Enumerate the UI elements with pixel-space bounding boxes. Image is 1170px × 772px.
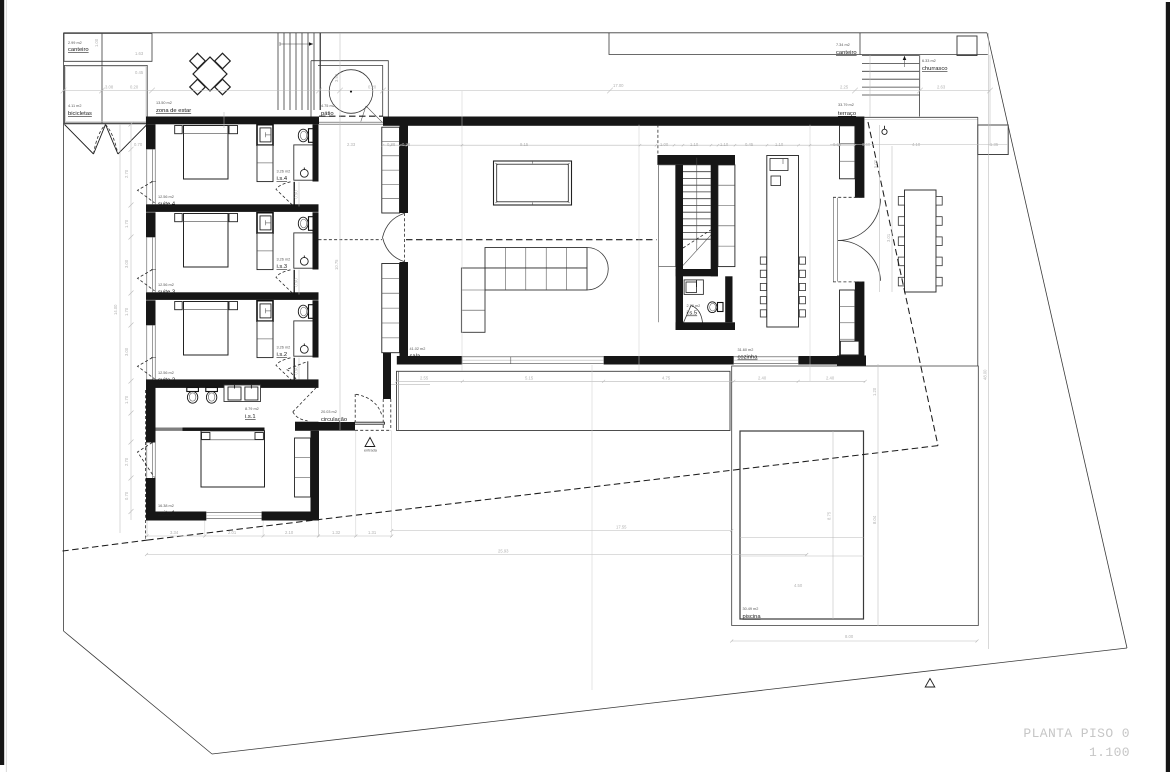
- svg-text:i.s.4: i.s.4: [277, 176, 288, 182]
- svg-text:0.45: 0.45: [135, 70, 144, 75]
- svg-text:17.00: 17.00: [613, 83, 624, 88]
- svg-text:2.01: 2.01: [228, 530, 237, 535]
- svg-text:9.15: 9.15: [520, 142, 529, 147]
- svg-text:2.40: 2.40: [758, 376, 767, 381]
- svg-text:3.00: 3.00: [124, 259, 129, 268]
- svg-text:12.56 m2: 12.56 m2: [158, 283, 174, 287]
- svg-text:0.70: 0.70: [124, 491, 129, 500]
- svg-text:3.00: 3.00: [124, 347, 129, 356]
- svg-text:14.00: 14.00: [113, 304, 118, 315]
- svg-text:3.26 m2: 3.26 m2: [277, 170, 291, 174]
- svg-text:12.56 m2: 12.56 m2: [158, 371, 174, 375]
- svg-text:1.31: 1.31: [368, 530, 377, 535]
- svg-text:4.75: 4.75: [662, 376, 671, 381]
- svg-text:0.45: 0.45: [745, 142, 754, 147]
- svg-text:4.75 m2: 4.75 m2: [321, 104, 335, 108]
- svg-text:entrada: entrada: [364, 449, 378, 453]
- svg-text:2.55: 2.55: [420, 376, 429, 381]
- svg-text:16.38 m2: 16.38 m2: [158, 504, 174, 508]
- svg-text:7.34 m2: 7.34 m2: [836, 43, 850, 47]
- svg-text:2.63: 2.63: [937, 85, 946, 90]
- svg-text:2.99 m2: 2.99 m2: [68, 41, 82, 45]
- svg-text:3.26 m2: 3.26 m2: [277, 258, 291, 262]
- svg-text:0.20: 0.20: [130, 85, 139, 90]
- svg-text:i.s.1: i.s.1: [245, 414, 256, 420]
- svg-text:33.79 m2: 33.79 m2: [838, 103, 854, 107]
- svg-text:20.03 m2: 20.03 m2: [321, 410, 337, 414]
- svg-text:suite 1: suite 1: [158, 511, 175, 517]
- svg-text:0.38: 0.38: [402, 142, 411, 147]
- svg-text:1.00: 1.00: [94, 38, 99, 47]
- svg-text:suite 4: suite 4: [158, 202, 176, 208]
- svg-text:0.90: 0.90: [294, 190, 299, 199]
- svg-text:canteiro: canteiro: [836, 50, 857, 56]
- svg-text:6.33 m2: 6.33 m2: [922, 59, 936, 63]
- svg-text:suite 3: suite 3: [158, 290, 175, 296]
- svg-text:0.20: 0.20: [368, 85, 377, 90]
- svg-text:8.04: 8.04: [872, 515, 877, 524]
- svg-text:2.40: 2.40: [826, 376, 835, 381]
- svg-text:2.78 m2: 2.78 m2: [687, 304, 701, 308]
- svg-text:1.20: 1.20: [872, 387, 877, 396]
- svg-text:48.00: 48.00: [983, 369, 988, 380]
- svg-text:5.15: 5.15: [525, 376, 534, 381]
- svg-text:0.90: 0.90: [294, 366, 299, 375]
- svg-text:10.75: 10.75: [334, 259, 339, 270]
- svg-text:8.00: 8.00: [845, 634, 854, 639]
- svg-text:8.79 m2: 8.79 m2: [245, 407, 259, 411]
- svg-text:1.63: 1.63: [135, 51, 144, 56]
- svg-text:2.70: 2.70: [124, 457, 129, 466]
- svg-text:12.56 m2: 12.56 m2: [158, 195, 174, 199]
- svg-text:1.70: 1.70: [124, 307, 129, 316]
- svg-text:2.33: 2.33: [347, 142, 356, 147]
- svg-text:i.s.2: i.s.2: [277, 352, 288, 358]
- svg-text:canteiro: canteiro: [68, 47, 89, 53]
- svg-text:0.70: 0.70: [134, 142, 143, 147]
- svg-text:17.55: 17.55: [616, 525, 627, 530]
- svg-text:1.70: 1.70: [124, 219, 129, 228]
- svg-text:5.00: 5.00: [873, 159, 878, 168]
- svg-text:1.100: 1.100: [1089, 745, 1130, 760]
- svg-text:3.34: 3.34: [170, 530, 179, 535]
- svg-text:terraço: terraço: [838, 111, 856, 117]
- svg-text:3.26 m2: 3.26 m2: [277, 346, 291, 350]
- svg-text:zona de estar: zona de estar: [156, 108, 191, 114]
- svg-text:4.11 m2: 4.11 m2: [68, 104, 81, 108]
- svg-text:1.00: 1.00: [660, 142, 669, 147]
- svg-text:i.s.3: i.s.3: [277, 264, 288, 270]
- svg-text:sala: sala: [410, 354, 421, 360]
- svg-text:churrasco: churrasco: [922, 66, 947, 72]
- svg-text:1.10: 1.10: [775, 142, 784, 147]
- svg-text:25.93: 25.93: [498, 549, 509, 554]
- svg-text:2.70: 2.70: [124, 169, 129, 178]
- svg-text:cozinha: cozinha: [738, 355, 759, 361]
- svg-text:2.10: 2.10: [285, 530, 294, 535]
- svg-text:0.38: 0.38: [387, 142, 396, 147]
- svg-text:1.32: 1.32: [332, 530, 341, 535]
- svg-text:bicicletas: bicicletas: [68, 111, 92, 117]
- svg-text:1.10: 1.10: [720, 142, 729, 147]
- svg-text:1.10: 1.10: [690, 142, 699, 147]
- svg-text:3.08: 3.08: [105, 85, 114, 90]
- svg-text:4.50: 4.50: [794, 583, 803, 588]
- svg-text:3.01: 3.01: [886, 233, 891, 242]
- svg-text:13.50 m2: 13.50 m2: [156, 101, 172, 105]
- svg-text:31.60 m2: 31.60 m2: [738, 348, 754, 352]
- svg-text:piscina: piscina: [743, 614, 762, 620]
- svg-text:2.25: 2.25: [840, 85, 849, 90]
- svg-text:8.75: 8.75: [827, 511, 832, 520]
- svg-text:30.49 m2: 30.49 m2: [743, 607, 759, 611]
- svg-text:41.02 m2: 41.02 m2: [410, 347, 426, 351]
- svg-text:3.90: 3.90: [334, 73, 339, 82]
- svg-text:PLANTA PISO 0: PLANTA PISO 0: [1023, 726, 1130, 741]
- svg-text:0.90: 0.90: [294, 278, 299, 287]
- svg-text:1.70: 1.70: [124, 395, 129, 404]
